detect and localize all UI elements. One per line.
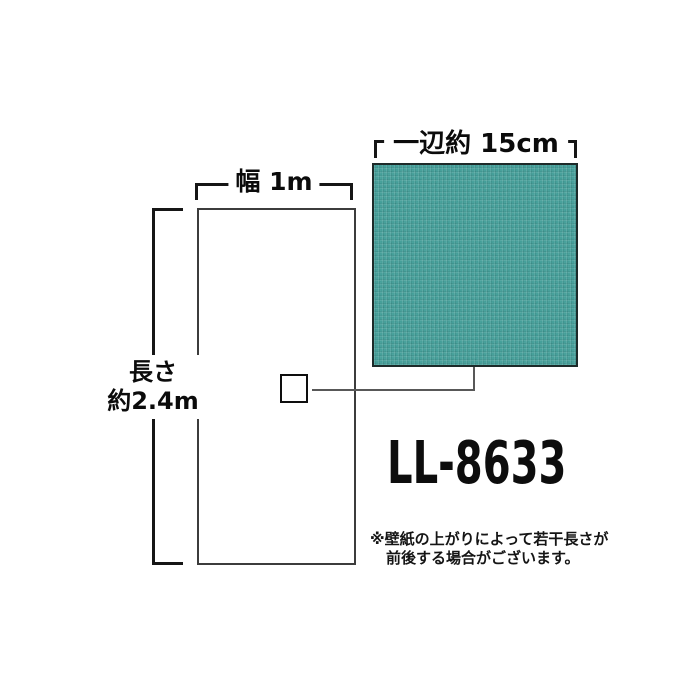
- note-line1: ※壁紙の上がりによって若干長さが: [370, 530, 608, 549]
- length-label-line2: 約2.4m: [107, 387, 199, 416]
- wallpaper-roll-outline: [197, 208, 356, 565]
- fabric-noise-texture: [374, 165, 576, 365]
- length-label-line1: 長さ: [107, 358, 199, 387]
- connector-line-vertical: [473, 367, 475, 391]
- connector-line-horizontal: [312, 389, 475, 391]
- length-variation-note: ※壁紙の上がりによって若干長さが 前後する場合がございます。: [370, 530, 608, 568]
- product-code: LL-8633: [387, 433, 566, 492]
- note-line2: 前後する場合がございます。: [370, 549, 608, 568]
- length-dimension-label: 長さ 約2.4m: [103, 355, 203, 419]
- sample-area-marker-square: [280, 374, 308, 403]
- wallpaper-dimension-diagram: 幅 1m 長さ 約2.4m 一辺約 15cm LL-8633 ※壁紙の: [0, 0, 700, 700]
- sample-size-label: 一辺約 15cm: [384, 128, 568, 161]
- width-dimension-label: 幅 1m: [228, 166, 319, 198]
- wallpaper-texture-swatch: [372, 163, 578, 367]
